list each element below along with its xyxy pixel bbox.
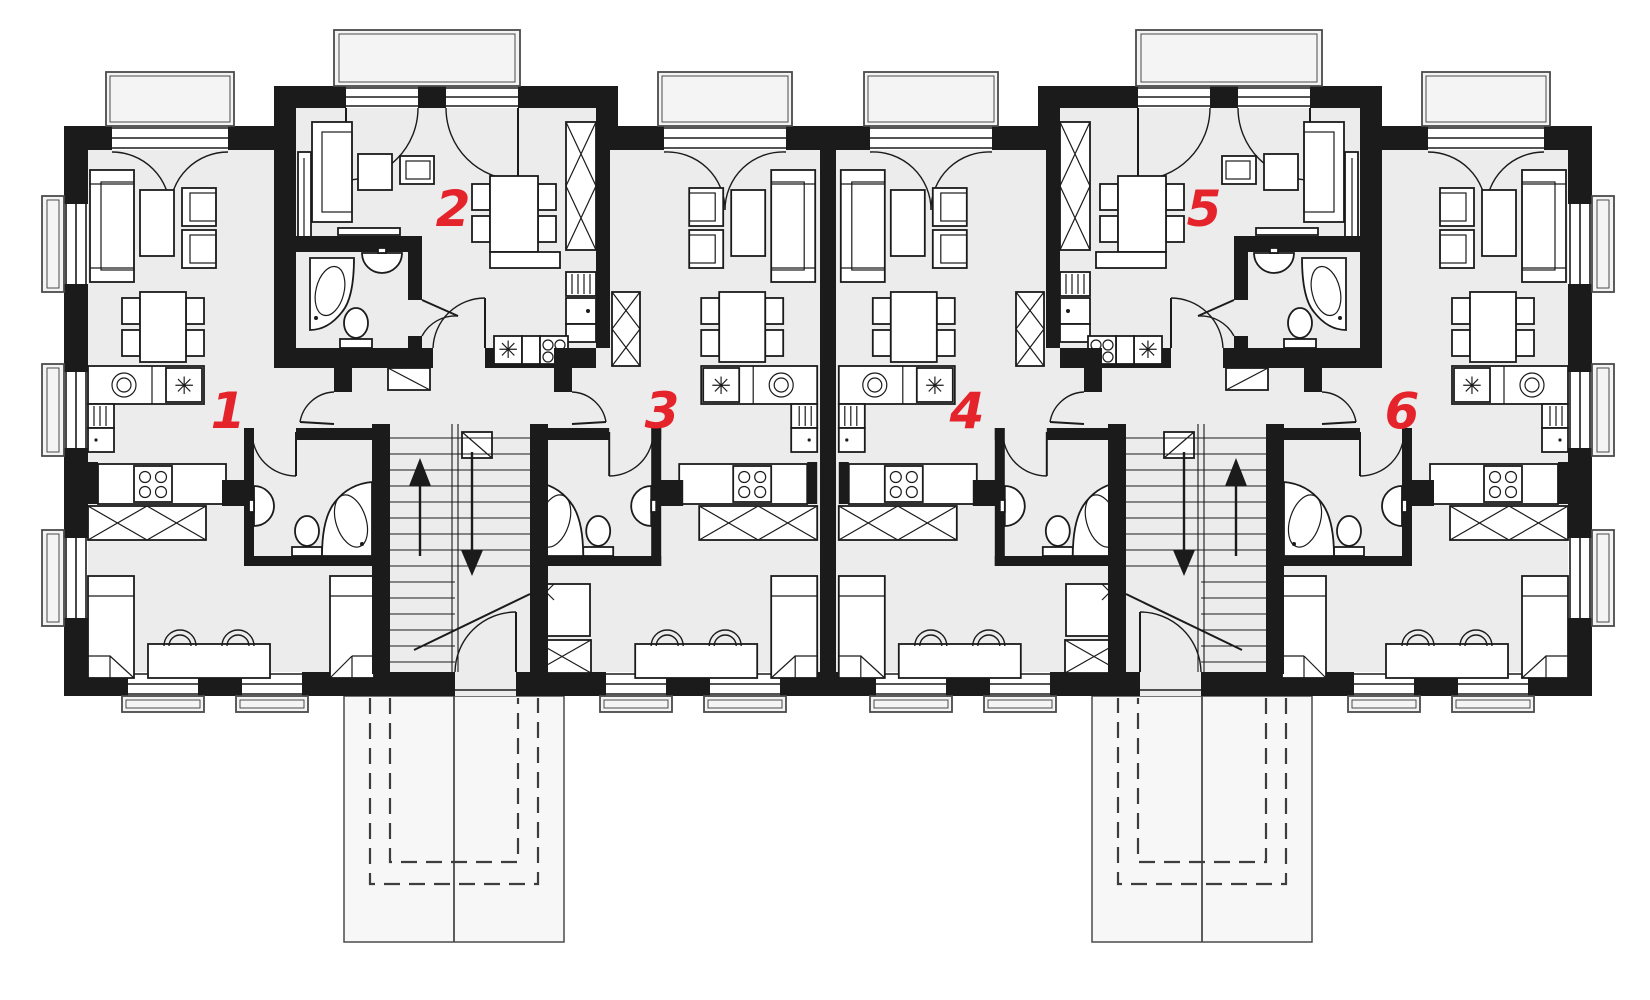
floor-plan-page: ✳ bbox=[0, 0, 1650, 1000]
apartment-label-3: 3 bbox=[645, 382, 680, 440]
apartment-label-5: 5 bbox=[1187, 180, 1222, 238]
left-wing bbox=[42, 30, 828, 942]
apartment-label-1: 1 bbox=[211, 382, 246, 440]
apartment-label-6: 6 bbox=[1385, 382, 1420, 440]
apartment-label-4: 4 bbox=[949, 382, 985, 440]
apartment-label-2: 2 bbox=[436, 180, 471, 238]
floor-plan-canvas: ✳ bbox=[0, 0, 1650, 1000]
right-wing bbox=[828, 30, 1614, 942]
